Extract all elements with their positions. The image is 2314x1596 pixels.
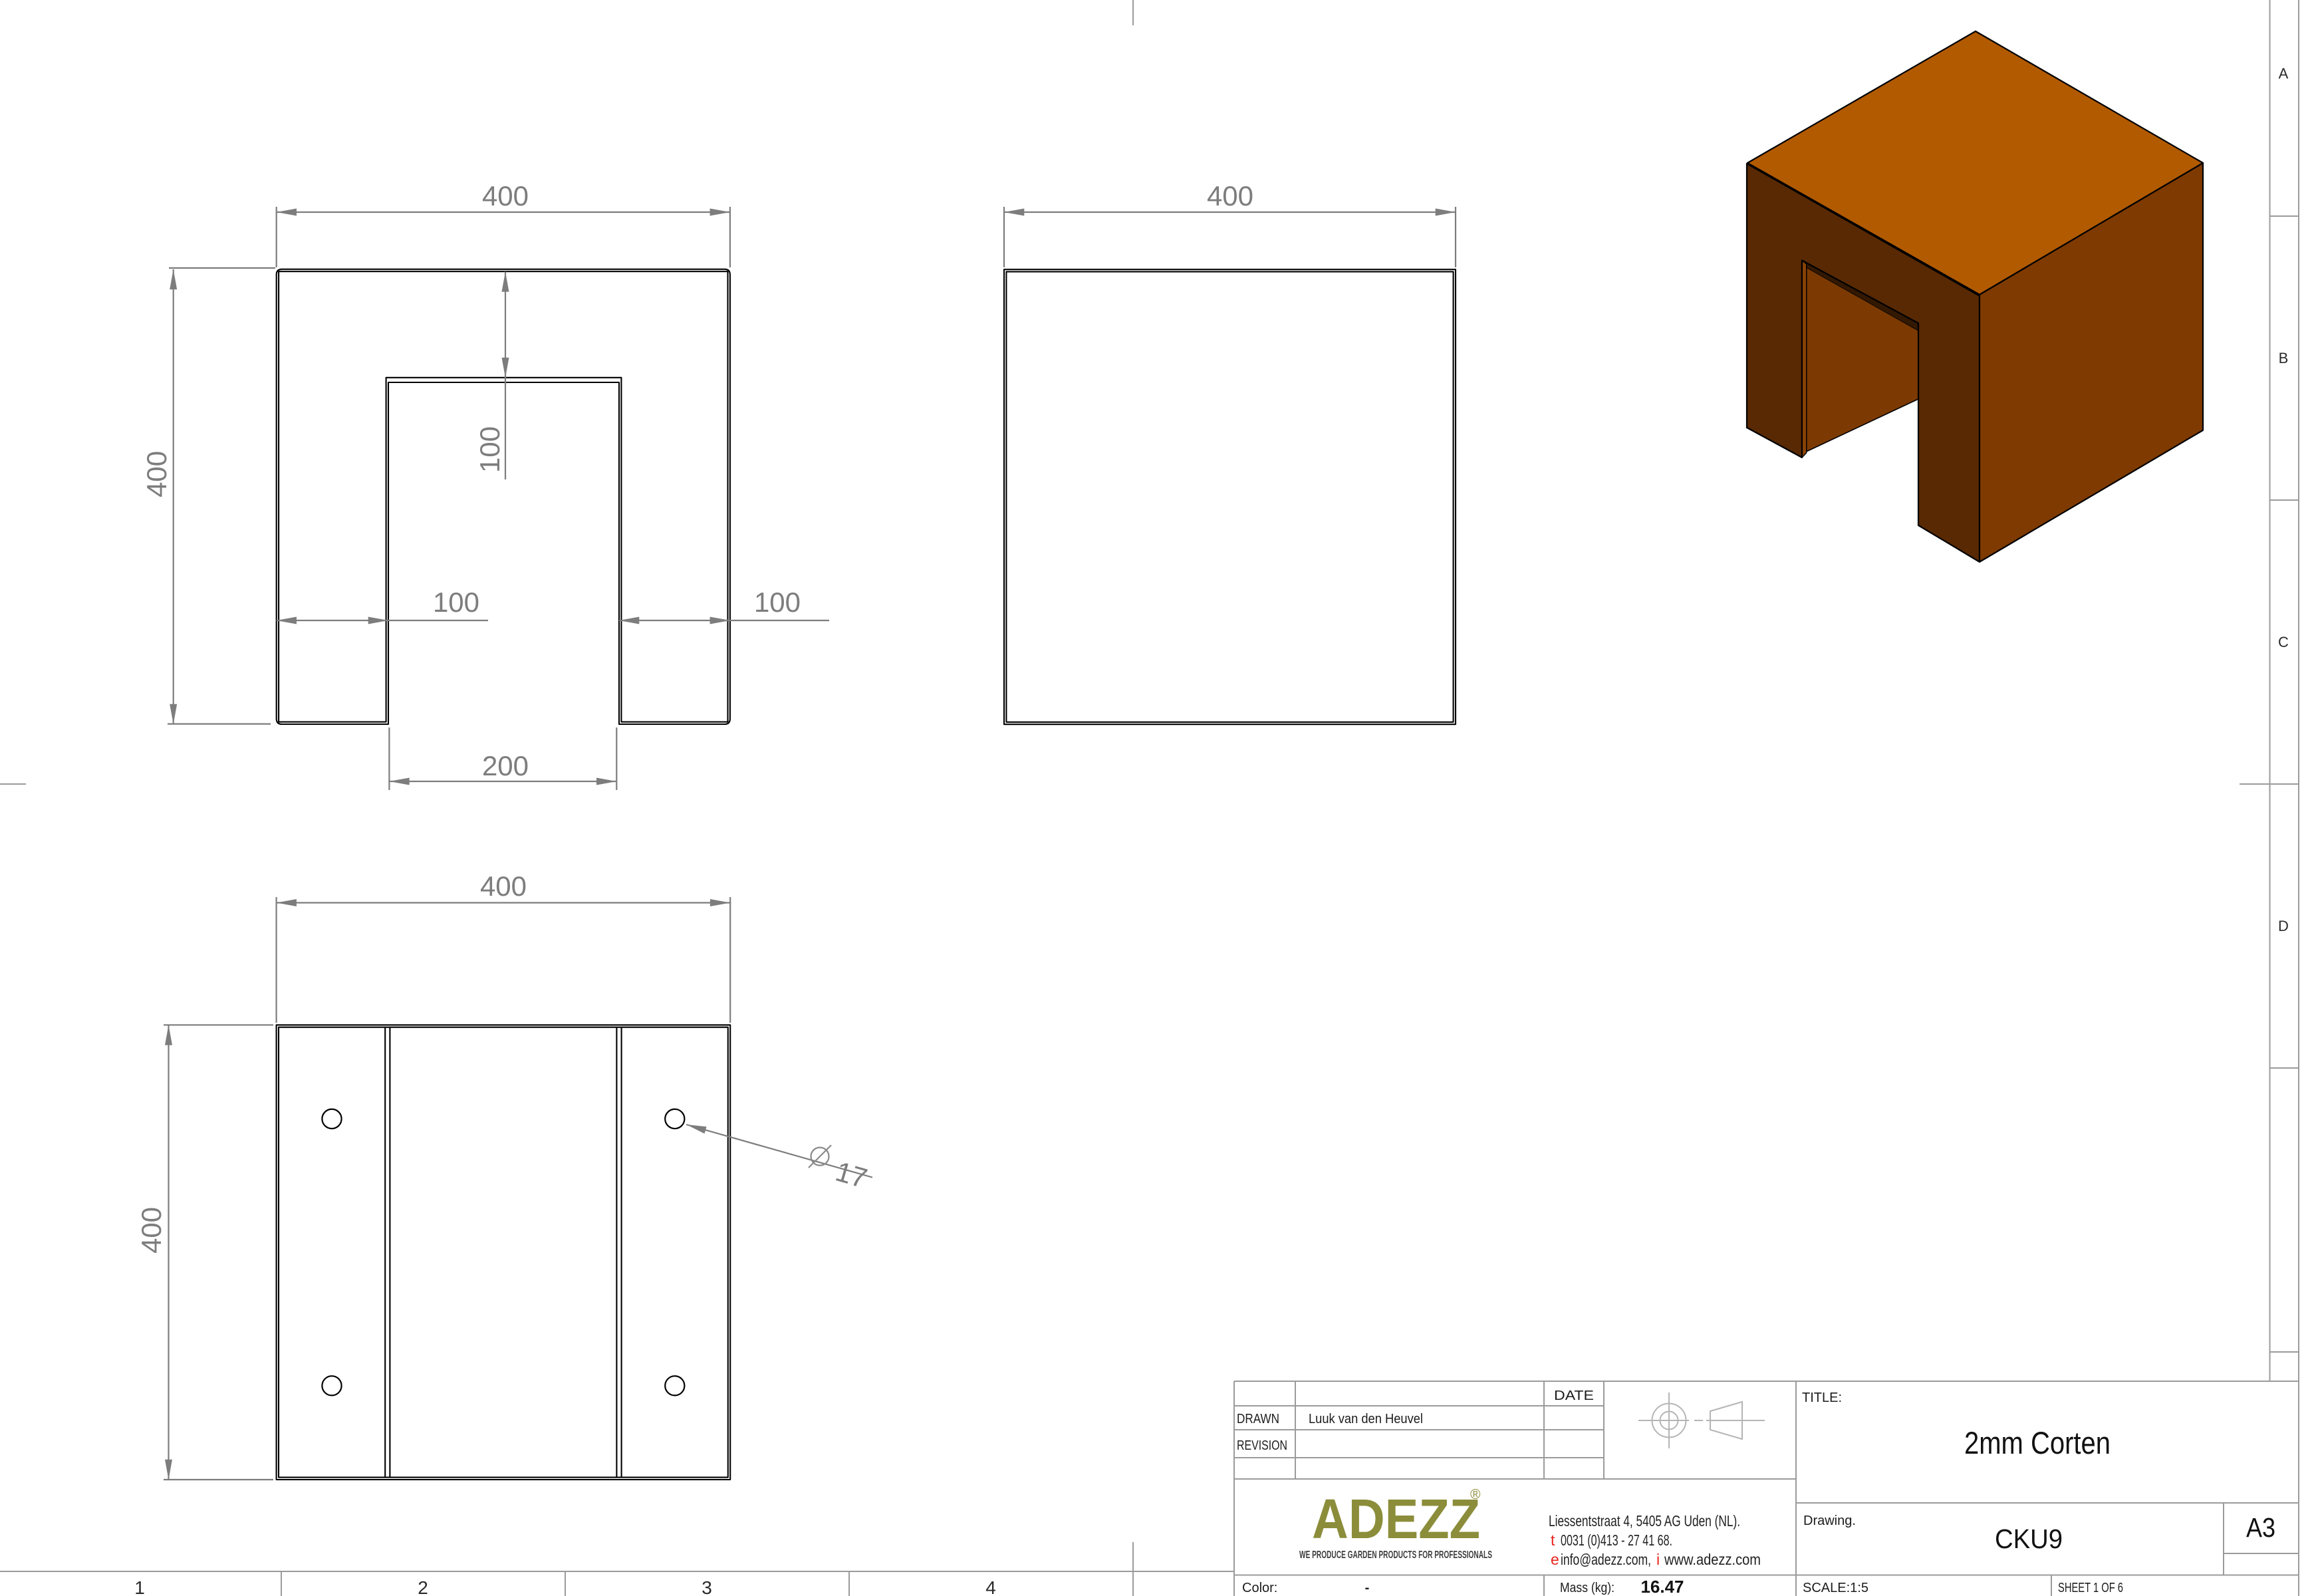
svg-text:100: 100 bbox=[474, 426, 505, 473]
svg-text:ADEZZ: ADEZZ bbox=[1312, 1488, 1480, 1550]
svg-text:2: 2 bbox=[418, 1577, 428, 1596]
svg-text:DRAWN: DRAWN bbox=[1237, 1412, 1279, 1426]
svg-text:Drawing.: Drawing. bbox=[1803, 1514, 1856, 1528]
svg-text:SCALE:1:5: SCALE:1:5 bbox=[1803, 1581, 1868, 1595]
svg-text:REVISION: REVISION bbox=[1237, 1438, 1287, 1453]
svg-text:t: t bbox=[1551, 1531, 1555, 1549]
svg-text:400: 400 bbox=[482, 180, 529, 211]
svg-text:WE PRODUCE GARDEN PRODUCTS FOR: WE PRODUCE GARDEN PRODUCTS FOR PROFESSIO… bbox=[1299, 1549, 1492, 1561]
svg-text:4: 4 bbox=[985, 1577, 996, 1596]
svg-text:Mass (kg):: Mass (kg): bbox=[1560, 1581, 1614, 1595]
svg-text:®: ® bbox=[1470, 1487, 1481, 1502]
svg-text:TITLE:: TITLE: bbox=[1802, 1391, 1842, 1405]
svg-text:e: e bbox=[1551, 1551, 1559, 1568]
svg-text:SHEET 1 OF 6: SHEET 1 OF 6 bbox=[2058, 1581, 2123, 1595]
svg-text:400: 400 bbox=[1207, 180, 1253, 211]
svg-text:100: 100 bbox=[754, 587, 801, 618]
svg-text:CKU9: CKU9 bbox=[1995, 1524, 2063, 1554]
svg-text:www.adezz.com: www.adezz.com bbox=[1664, 1551, 1761, 1568]
svg-text:Liessentstraat 4, 5405 AG Uden: Liessentstraat 4, 5405 AG Uden (NL). bbox=[1549, 1512, 1740, 1529]
svg-text:200: 200 bbox=[482, 750, 529, 781]
svg-text:Color:: Color: bbox=[1242, 1581, 1277, 1595]
svg-text:i: i bbox=[1656, 1551, 1660, 1568]
svg-text:2mm Corten: 2mm Corten bbox=[1964, 1425, 2111, 1460]
svg-text:400: 400 bbox=[480, 870, 527, 902]
svg-text:16.47: 16.47 bbox=[1640, 1577, 1684, 1596]
svg-text:0031 (0)413 - 27 41 68.: 0031 (0)413 - 27 41 68. bbox=[1561, 1531, 1672, 1549]
svg-text:100: 100 bbox=[433, 587, 479, 618]
svg-text:400: 400 bbox=[136, 1207, 167, 1254]
svg-text:A3: A3 bbox=[2246, 1512, 2275, 1543]
svg-text:-: - bbox=[1365, 1581, 1370, 1595]
svg-text:A: A bbox=[2279, 65, 2289, 82]
svg-text:400: 400 bbox=[141, 451, 172, 497]
svg-text:1: 1 bbox=[134, 1577, 145, 1596]
svg-text:info@adezz.com,: info@adezz.com, bbox=[1561, 1551, 1651, 1568]
svg-text:C: C bbox=[2278, 634, 2289, 650]
svg-text:B: B bbox=[2279, 350, 2289, 366]
svg-text:Luuk van den Heuvel: Luuk van den Heuvel bbox=[1309, 1412, 1423, 1426]
svg-text:DATE: DATE bbox=[1554, 1389, 1594, 1403]
svg-text:3: 3 bbox=[702, 1577, 712, 1596]
svg-text:D: D bbox=[2278, 918, 2289, 934]
